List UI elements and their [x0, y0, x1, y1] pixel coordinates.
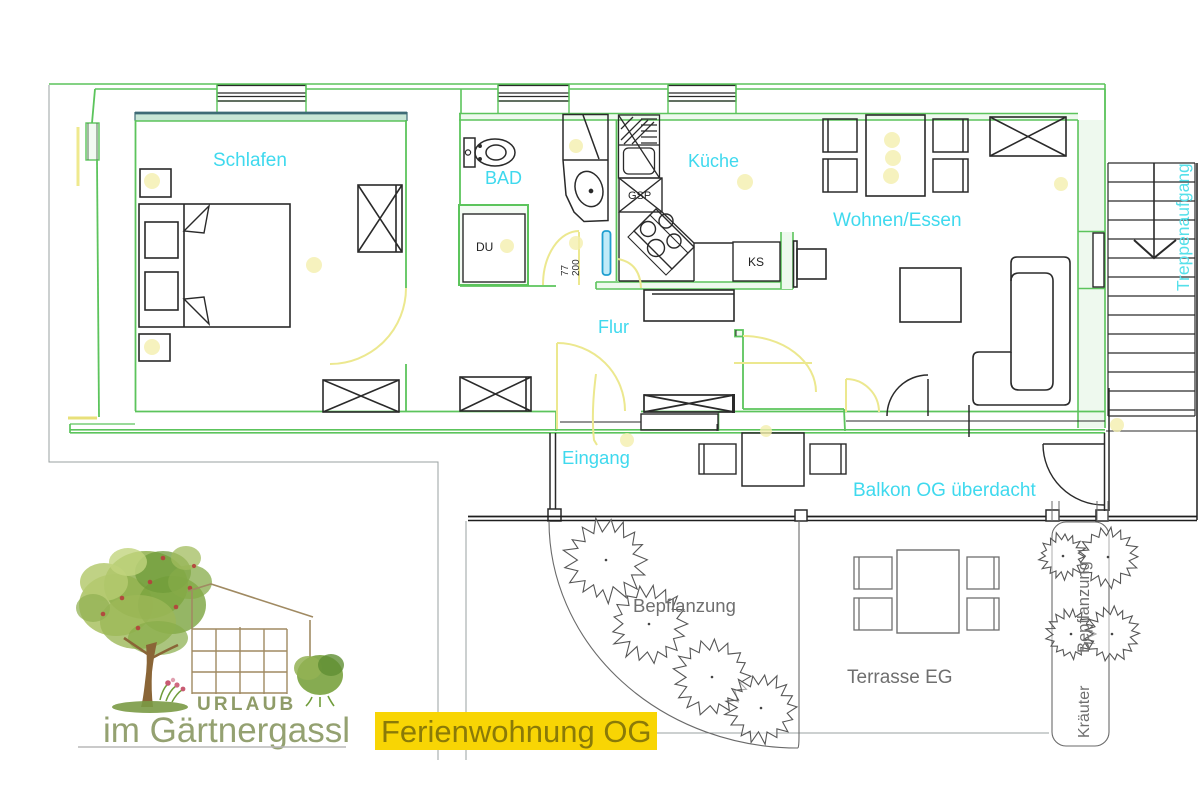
svg-text:im Gärtnergassl: im Gärtnergassl — [103, 711, 350, 750]
svg-text:Eingang: Eingang — [562, 447, 630, 468]
svg-text:BAD: BAD — [485, 168, 522, 188]
svg-text:Küche: Küche — [688, 151, 739, 171]
svg-text:GSP: GSP — [628, 190, 651, 202]
svg-text:Bepflanzung: Bepflanzung — [1075, 561, 1093, 653]
svg-text:Balkon OG überdacht: Balkon OG überdacht — [853, 480, 1036, 501]
svg-text:KS: KS — [748, 255, 764, 269]
svg-text:Treppenaufgang: Treppenaufgang — [1173, 163, 1193, 291]
svg-text:200: 200 — [571, 259, 582, 276]
svg-text:DU: DU — [476, 240, 493, 254]
svg-text:Bepflanzung: Bepflanzung — [633, 595, 736, 616]
svg-text:Wohnen/Essen: Wohnen/Essen — [833, 210, 962, 231]
svg-text:Flur: Flur — [598, 317, 629, 337]
svg-text:Terrasse EG: Terrasse EG — [847, 667, 953, 688]
svg-text:Schlafen: Schlafen — [213, 150, 287, 171]
svg-text:Ferienwohnung OG: Ferienwohnung OG — [381, 714, 652, 749]
svg-text:Kräuter: Kräuter — [1076, 685, 1093, 738]
svg-text:77: 77 — [560, 264, 571, 276]
